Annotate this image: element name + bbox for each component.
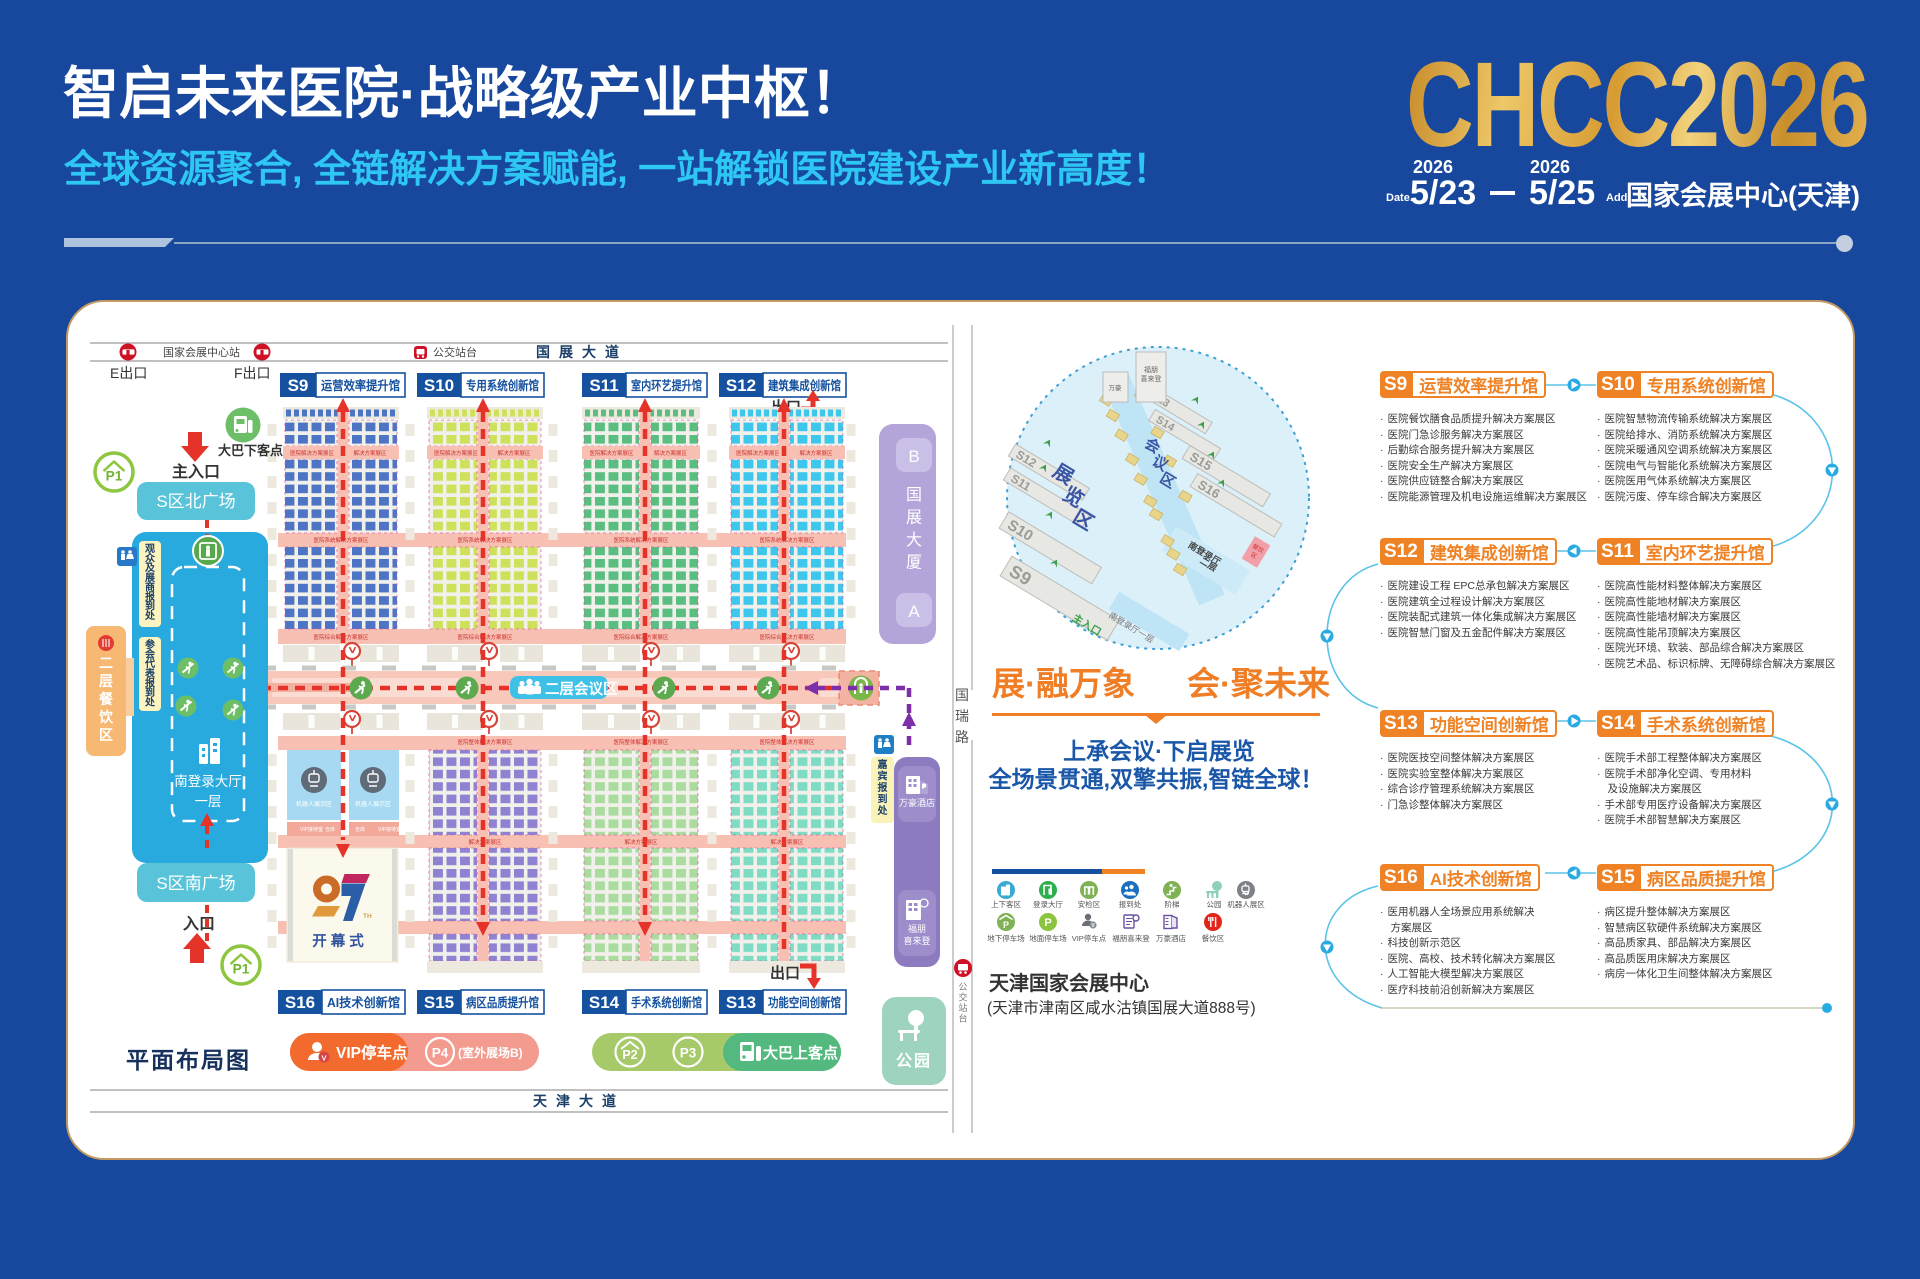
svg-text:P: P xyxy=(1044,917,1051,929)
svg-text:处: 处 xyxy=(144,696,156,709)
svg-text:处: 处 xyxy=(144,609,156,622)
svg-text:国: 国 xyxy=(906,487,922,504)
svg-text:上下客区: 上下客区 xyxy=(991,899,1021,909)
svg-text:福朋: 福朋 xyxy=(1144,365,1158,374)
svg-text:万豪: 万豪 xyxy=(1109,383,1123,392)
svg-text:瑞: 瑞 xyxy=(955,708,969,724)
svg-text:功能空间创新馆: 功能空间创新馆 xyxy=(768,995,841,1010)
svg-text:A: A xyxy=(908,602,920,621)
svg-text:解决方案展区: 解决方案展区 xyxy=(654,449,688,457)
svg-text:天津大道: 天津大道 xyxy=(533,1093,625,1109)
svg-text:饮: 饮 xyxy=(98,709,114,725)
svg-text:餐饮区: 餐饮区 xyxy=(1202,933,1225,943)
svg-text:餐: 餐 xyxy=(98,691,114,707)
svg-text:解决方案展区: 解决方案展区 xyxy=(497,449,531,457)
svg-text:V: V xyxy=(321,1054,326,1063)
svg-text:S9: S9 xyxy=(288,376,309,395)
svg-text:医院整体解决方案展区: 医院整体解决方案展区 xyxy=(613,738,669,746)
svg-text:地面停车场: 地面停车场 xyxy=(1029,933,1067,943)
svg-text:处: 处 xyxy=(877,804,889,817)
svg-text:报到处: 报到处 xyxy=(1119,899,1142,909)
svg-text:公: 公 xyxy=(958,982,967,992)
svg-text:地下停车场: 地下停车场 xyxy=(987,933,1025,943)
svg-text:安检区: 安检区 xyxy=(1078,899,1101,909)
svg-text:南登录大厅: 南登录大厅 xyxy=(174,774,242,789)
svg-text:路: 路 xyxy=(955,729,969,745)
svg-text:手术系统创新馆: 手术系统创新馆 xyxy=(631,995,702,1010)
svg-text:VIP接待室: VIP接待室 xyxy=(300,826,323,833)
svg-text:福朋: 福朋 xyxy=(908,923,926,934)
svg-text:医院解决方案展区: 医院解决方案展区 xyxy=(434,449,479,457)
svg-text:福朋喜来登: 福朋喜来登 xyxy=(1112,933,1150,943)
svg-text:台: 台 xyxy=(958,1013,967,1024)
svg-text:喜来登: 喜来登 xyxy=(1141,374,1162,383)
svg-text:主入口: 主入口 xyxy=(172,462,220,481)
svg-text:厦: 厦 xyxy=(906,555,922,572)
svg-text:医院解决方案展区: 医院解决方案展区 xyxy=(736,449,781,457)
svg-text:建筑集成创新馆: 建筑集成创新馆 xyxy=(768,378,841,393)
svg-text:国: 国 xyxy=(955,687,969,703)
svg-text:(室外展场B): (室外展场B) xyxy=(458,1045,523,1060)
svg-text:S12: S12 xyxy=(726,376,756,395)
svg-text:S区北广场: S区北广场 xyxy=(156,492,235,511)
svg-text:S16: S16 xyxy=(285,993,315,1012)
svg-text:P1: P1 xyxy=(233,962,250,977)
svg-text:仓库: 仓库 xyxy=(355,826,365,833)
svg-text:万豪酒店: 万豪酒店 xyxy=(899,797,935,808)
svg-text:VIP停车点: VIP停车点 xyxy=(336,1043,408,1062)
svg-text:医院综合解决方案展区: 医院综合解决方案展区 xyxy=(613,633,669,641)
svg-text:国家会展中心站: 国家会展中心站 xyxy=(163,345,240,359)
svg-text:P1: P1 xyxy=(106,469,123,484)
svg-text:F出口: F出口 xyxy=(234,365,271,381)
svg-text:大巴下客点: 大巴下客点 xyxy=(218,443,283,458)
svg-text:展: 展 xyxy=(906,510,922,527)
svg-text:登录大厅: 登录大厅 xyxy=(1033,899,1063,909)
svg-text:E出口: E出口 xyxy=(110,365,147,381)
svg-text:机器人展区: 机器人展区 xyxy=(1227,899,1265,909)
svg-text:P3: P3 xyxy=(680,1046,697,1061)
svg-text:万豪酒店: 万豪酒店 xyxy=(1156,933,1186,943)
svg-text:区: 区 xyxy=(99,727,113,743)
svg-text:仓库: 仓库 xyxy=(325,826,335,833)
svg-text:VIP接待室: VIP接待室 xyxy=(378,826,401,833)
svg-text:病区品质提升馆: 病区品质提升馆 xyxy=(466,995,539,1010)
svg-text:专用系统创新馆: 专用系统创新馆 xyxy=(466,378,539,393)
svg-text:解决方案展区: 解决方案展区 xyxy=(353,449,387,457)
svg-text:二: 二 xyxy=(99,655,113,671)
svg-text:B: B xyxy=(908,447,919,466)
svg-text:P: P xyxy=(1003,920,1009,930)
svg-text:平面布局图: 平面布局图 xyxy=(126,1047,251,1073)
svg-text:大巴上客点: 大巴上客点 xyxy=(763,1044,838,1062)
svg-text:P4: P4 xyxy=(432,1046,449,1061)
svg-text:公园: 公园 xyxy=(896,1052,932,1070)
svg-text:二层会议区: 二层会议区 xyxy=(545,680,618,698)
svg-text:室内环艺提升馆: 室内环艺提升馆 xyxy=(631,378,702,393)
svg-text:P2: P2 xyxy=(622,1048,637,1062)
svg-text:S10: S10 xyxy=(424,376,454,395)
svg-text:大: 大 xyxy=(906,531,922,549)
svg-text:交: 交 xyxy=(958,992,967,1003)
svg-text:国展大道: 国展大道 xyxy=(536,344,628,360)
svg-text:医院解决方案展区: 医院解决方案展区 xyxy=(589,449,634,457)
svg-text:VIP停车点: VIP停车点 xyxy=(1072,933,1107,943)
svg-text:S14: S14 xyxy=(589,993,620,1012)
svg-text:报: 报 xyxy=(878,781,888,794)
svg-text:医院整体解决方案展区: 医院整体解决方案展区 xyxy=(759,738,815,746)
svg-text:宾: 宾 xyxy=(878,770,888,783)
svg-text:喜来登: 喜来登 xyxy=(903,935,930,946)
svg-text:开幕式: 开幕式 xyxy=(312,932,368,950)
svg-text:入口: 入口 xyxy=(183,915,215,933)
svg-text:阶梯: 阶梯 xyxy=(1165,899,1181,909)
svg-text:出口: 出口 xyxy=(770,964,800,982)
svg-text:层: 层 xyxy=(99,673,113,689)
svg-text:S13: S13 xyxy=(726,993,756,1012)
svg-text:S区南广场: S区南广场 xyxy=(156,874,235,893)
svg-text:公交站台: 公交站台 xyxy=(433,345,477,359)
svg-text:站: 站 xyxy=(958,1002,967,1013)
svg-text:到: 到 xyxy=(878,793,888,806)
svg-text:医院系统解决方案展区: 医院系统解决方案展区 xyxy=(613,536,669,544)
svg-text:一层: 一层 xyxy=(195,794,222,809)
svg-text:医院系统解决方案展区: 医院系统解决方案展区 xyxy=(759,536,815,544)
svg-text:医院解决方案展区: 医院解决方案展区 xyxy=(290,449,335,457)
svg-text:公园: 公园 xyxy=(1207,900,1222,909)
svg-text:解决方案展区: 解决方案展区 xyxy=(770,838,804,846)
svg-text:解决方案展区: 解决方案展区 xyxy=(624,838,658,846)
svg-text:S11: S11 xyxy=(589,376,618,395)
svg-text:嘉: 嘉 xyxy=(877,758,888,771)
svg-text:解决方案展区: 解决方案展区 xyxy=(799,449,833,457)
svg-text:医院综合解决方案展区: 医院综合解决方案展区 xyxy=(759,633,815,641)
svg-text:TH: TH xyxy=(363,913,372,920)
svg-text:机器人展示区: 机器人展示区 xyxy=(355,800,391,808)
svg-text:运营效率提升馆: 运营效率提升馆 xyxy=(321,378,400,393)
svg-text:S15: S15 xyxy=(424,993,454,1012)
svg-text:机器人展示区: 机器人展示区 xyxy=(296,800,332,808)
svg-text:AI技术创新馆: AI技术创新馆 xyxy=(327,995,400,1010)
